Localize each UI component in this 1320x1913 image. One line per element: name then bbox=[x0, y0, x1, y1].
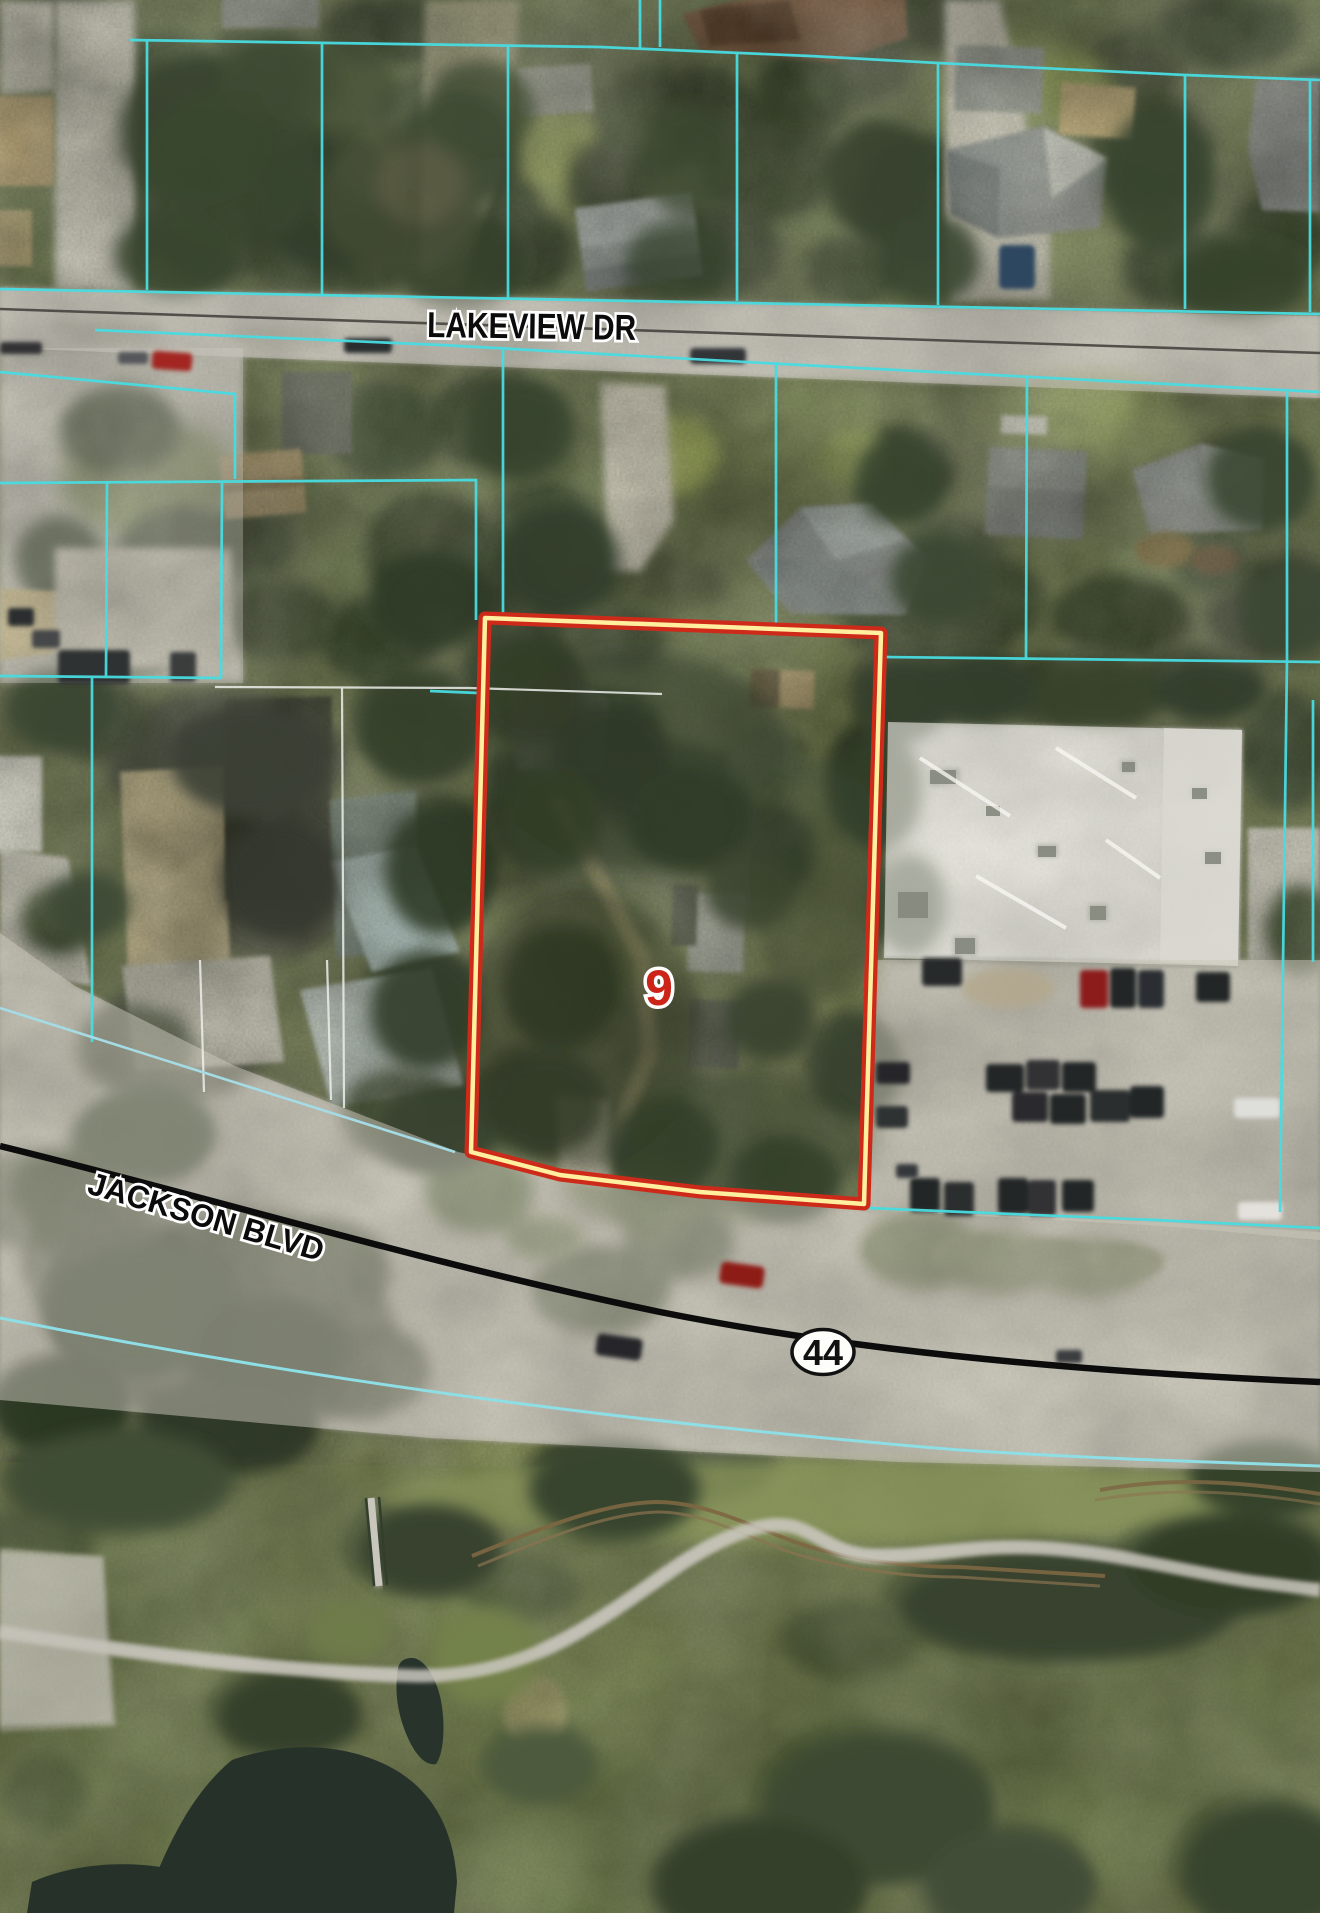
svg-text:9: 9 bbox=[645, 960, 673, 1016]
svg-text:44: 44 bbox=[803, 1332, 843, 1373]
svg-text:LAKEVIEW DR: LAKEVIEW DR bbox=[427, 304, 637, 348]
